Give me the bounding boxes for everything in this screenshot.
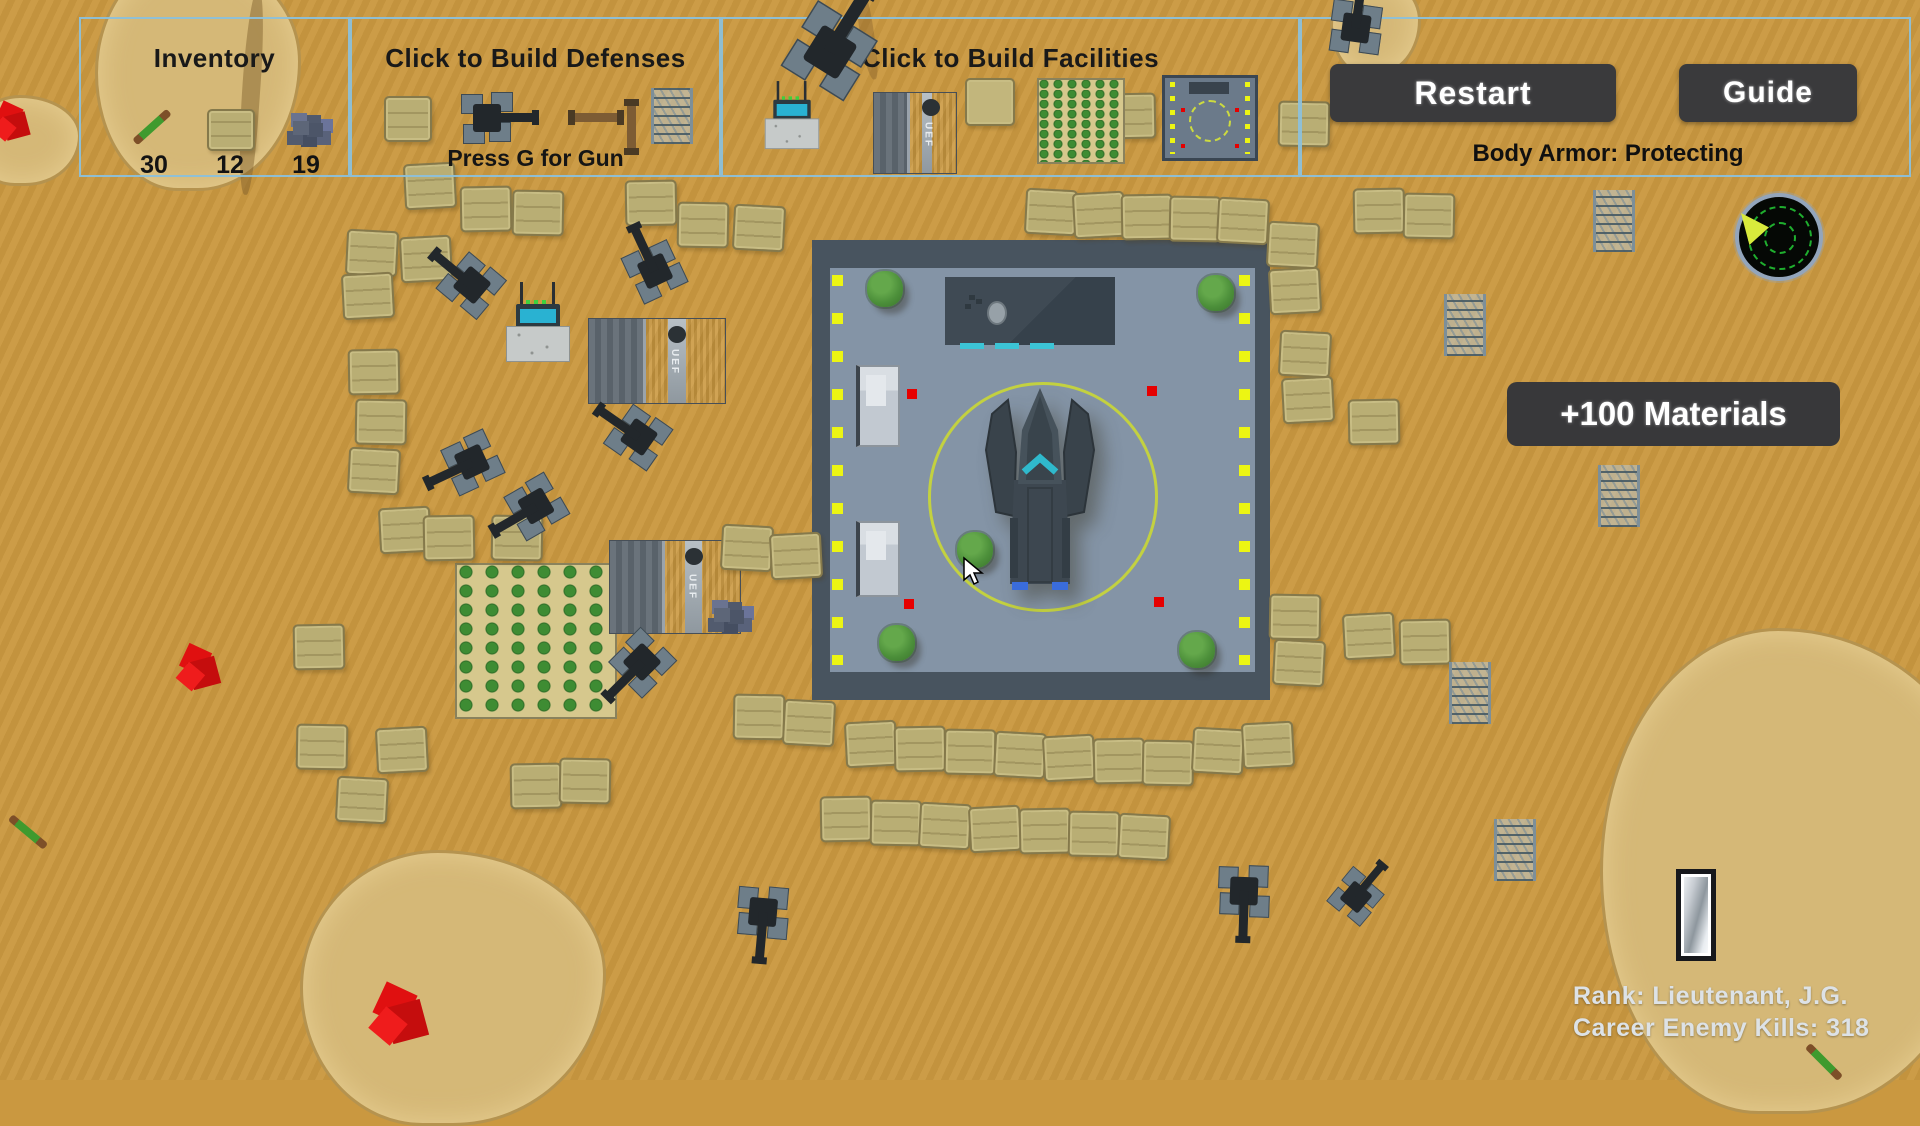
- defenses-title: Click to Build Defenses: [352, 43, 719, 74]
- sandbag: [1019, 808, 1072, 855]
- radar-ring-inner: [1764, 222, 1796, 254]
- javelin-count: 30: [119, 151, 189, 180]
- sandbag-icon: [207, 109, 255, 151]
- radar-minimap: [1735, 193, 1823, 281]
- enemy-blob: [369, 984, 431, 1046]
- sandbag: [1024, 188, 1078, 237]
- pad-marker-dot: [1154, 597, 1164, 607]
- sandbag: [510, 763, 563, 810]
- sandbag: [820, 796, 873, 843]
- inventory-slot-javelin: [119, 109, 189, 117]
- pipe-build-icon[interactable]: [570, 113, 622, 122]
- sandbag: [918, 802, 972, 851]
- sandbag: [1093, 738, 1146, 785]
- supply-crate: [856, 521, 900, 597]
- sandbag: [1072, 191, 1126, 240]
- materials-count: 19: [271, 151, 341, 180]
- sandbag: [1068, 811, 1121, 858]
- barbed-wire: [1449, 662, 1491, 724]
- tree: [1179, 632, 1215, 668]
- gun-turret: [1324, 0, 1387, 60]
- pad-edge-lights-right: [1239, 275, 1250, 665]
- inventory-panel: Inventory 30 12 19: [79, 17, 350, 177]
- gun-turret: [435, 425, 509, 499]
- barbed-wire: [1494, 819, 1536, 881]
- sandbag: [345, 229, 399, 278]
- gun-turret: [733, 882, 794, 943]
- landing-pad-build-icon[interactable]: [1162, 75, 1258, 161]
- gun-hotkey-hint: Press G for Gun: [352, 145, 719, 172]
- sandbag: [559, 758, 612, 805]
- barbed-wire: [1444, 294, 1486, 356]
- game-screen: { "hud": { "inventory": { "title": "Inve…: [0, 0, 1920, 1080]
- gun-turret: [600, 398, 678, 476]
- tree: [879, 625, 915, 661]
- supply-crate: [856, 365, 900, 447]
- sandbag: [720, 524, 774, 573]
- sandbag: [375, 726, 429, 775]
- sandbag: [423, 515, 476, 562]
- restart-button[interactable]: Restart: [1330, 64, 1616, 122]
- armor-bar: [1676, 869, 1716, 961]
- materials-toast: +100 Materials: [1507, 382, 1840, 446]
- farm-plot: [455, 563, 617, 719]
- materials-pile: [714, 608, 730, 622]
- rank-text: Rank: Lieutenant, J.G.: [1573, 982, 1848, 1011]
- sandbag: [1216, 197, 1270, 246]
- sandbag: [732, 204, 786, 253]
- sandbag: [335, 776, 389, 825]
- radio-station-build-icon[interactable]: [765, 93, 819, 149]
- tree: [1198, 275, 1234, 311]
- sandbag: [1191, 727, 1245, 776]
- sandbag: [1353, 188, 1406, 235]
- sandbag: [460, 186, 513, 233]
- pole-build-icon[interactable]: [627, 101, 636, 153]
- sandbag: [512, 190, 565, 237]
- barbed-wire-build-icon[interactable]: [651, 88, 693, 144]
- gun-turret-build-icon[interactable]: [459, 90, 515, 146]
- sandbag-build-icon[interactable]: [384, 96, 432, 142]
- roof-fan-icon: [987, 301, 1007, 325]
- sandbag: [968, 805, 1022, 854]
- career-kills-text: Career Enemy Kills: 318: [1573, 1014, 1869, 1043]
- pad-marker-dot: [1147, 386, 1157, 396]
- bunker-building: UEF: [588, 318, 726, 404]
- body-armor-status: Body Armor: Protecting: [1428, 140, 1788, 168]
- sandbag: [782, 699, 836, 748]
- javelin-icon: [132, 109, 172, 146]
- rock-outcrop: [300, 850, 606, 1126]
- sandbag: [1269, 594, 1322, 641]
- guide-button[interactable]: Guide: [1679, 64, 1857, 122]
- sandbag: [1142, 740, 1195, 787]
- dropship: [978, 388, 1102, 604]
- sandbag: [1399, 619, 1452, 666]
- sandbag: [944, 729, 997, 776]
- inventory-slot-sandbag: [195, 109, 265, 151]
- pad-building: [945, 277, 1115, 345]
- materials-icon: [293, 121, 309, 135]
- farm-build-icon[interactable]: [1037, 78, 1125, 164]
- inventory-slot-materials: [271, 109, 341, 123]
- tree: [867, 271, 903, 307]
- sandbag: [870, 800, 923, 847]
- pad-build-icon[interactable]: [965, 78, 1015, 126]
- sandbag: [625, 180, 678, 227]
- barbed-wire: [1593, 190, 1635, 252]
- inventory-title: Inventory: [81, 43, 348, 74]
- enemy-blob: [0, 102, 32, 142]
- sandbag: [677, 202, 730, 249]
- sandbag: [348, 349, 401, 396]
- radio-station: [506, 296, 570, 362]
- sandbag: [1348, 399, 1401, 446]
- pad-edge-lights-left: [832, 275, 843, 665]
- sandbag: [1403, 193, 1456, 240]
- landing-pad-base: [812, 240, 1270, 700]
- sandbag: [1121, 194, 1174, 241]
- pad-marker-dot: [907, 389, 917, 399]
- sandbag: [341, 272, 395, 321]
- sandbag: [733, 694, 786, 741]
- sandbag: [1272, 639, 1326, 688]
- sandbag: [894, 726, 947, 773]
- bunker-build-icon[interactable]: UEF: [873, 92, 957, 174]
- sandbag: [1281, 376, 1335, 425]
- sandbag: [1278, 330, 1332, 379]
- javelin-pickup: [8, 814, 48, 850]
- gun-turret: [1215, 862, 1273, 920]
- sandbag: [293, 624, 346, 671]
- gun-turret: [1322, 863, 1389, 930]
- mouse-cursor: [962, 556, 988, 586]
- sandbag: [296, 724, 349, 771]
- sandbag: [1117, 813, 1171, 862]
- sandbag: [355, 399, 408, 446]
- sandbag: [844, 720, 898, 769]
- sandbag-count: 12: [195, 151, 265, 180]
- cyan-windows: [960, 343, 1060, 349]
- sandbag: [1042, 734, 1096, 783]
- sandbag: [1266, 221, 1320, 270]
- sandbag: [1169, 196, 1222, 243]
- roof-vents: [969, 295, 975, 300]
- gun-turret: [433, 246, 512, 325]
- enemy-blob: [176, 645, 222, 691]
- sandbag: [993, 731, 1047, 780]
- barbed-wire: [1598, 465, 1640, 527]
- sandbag: [769, 532, 823, 581]
- sandbag: [1241, 721, 1295, 770]
- sandbag: [1342, 612, 1396, 661]
- pad-marker-dot: [904, 599, 914, 609]
- sandbag: [1268, 267, 1322, 316]
- sandbag: [347, 447, 401, 496]
